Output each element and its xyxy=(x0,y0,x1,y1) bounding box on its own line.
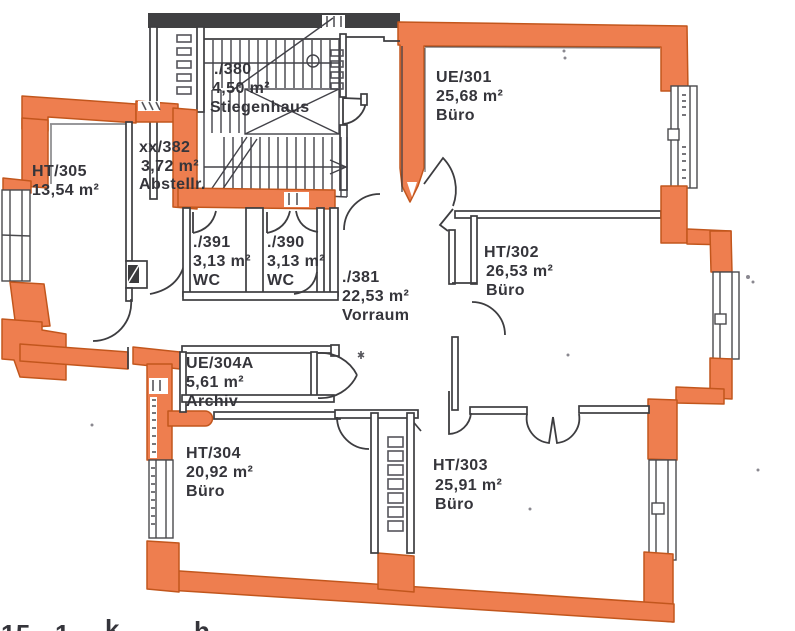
svg-text:5,61 m²: 5,61 m² xyxy=(186,374,244,391)
svg-text:HT/305: HT/305 xyxy=(32,163,87,180)
svg-text:3,13 m²: 3,13 m² xyxy=(267,253,325,270)
svg-text:HT/304: HT/304 xyxy=(186,445,241,462)
svg-text:./380: ./380 xyxy=(214,61,252,78)
svg-text:xx/382: xx/382 xyxy=(139,139,190,156)
svg-text:3,13 m²: 3,13 m² xyxy=(193,253,251,270)
svg-text:WC: WC xyxy=(267,272,295,289)
svg-text:1: 1 xyxy=(55,619,70,631)
svg-text:20,92 m²: 20,92 m² xyxy=(186,464,253,481)
svg-text:Vorraum: Vorraum xyxy=(342,307,409,324)
svg-text:Abstellr.: Abstellr. xyxy=(139,176,206,193)
svg-text:UE/301: UE/301 xyxy=(436,69,492,86)
svg-text:Büro: Büro xyxy=(186,483,225,500)
svg-text:HT/303: HT/303 xyxy=(433,457,488,474)
svg-text:Stiegenhaus: Stiegenhaus xyxy=(210,99,310,116)
svg-text:26,53 m²: 26,53 m² xyxy=(486,263,553,280)
svg-text:k: k xyxy=(105,614,120,631)
svg-text:HT/302: HT/302 xyxy=(484,244,539,261)
svg-text:Büro: Büro xyxy=(435,496,474,513)
svg-text:13,54 m²: 13,54 m² xyxy=(32,182,99,199)
svg-text:./381: ./381 xyxy=(342,269,380,286)
svg-text:4,50 m²: 4,50 m² xyxy=(212,80,270,97)
svg-text:Büro: Büro xyxy=(486,282,525,299)
svg-text:./391: ./391 xyxy=(193,234,231,251)
svg-text:WC: WC xyxy=(193,272,221,289)
svg-text:Büro: Büro xyxy=(436,107,475,124)
svg-text:Archiv: Archiv xyxy=(186,393,238,410)
svg-text:22,53 m²: 22,53 m² xyxy=(342,288,409,305)
svg-text:h: h xyxy=(194,616,210,631)
svg-text:UE/304A: UE/304A xyxy=(186,355,254,372)
svg-text:3,72 m²: 3,72 m² xyxy=(141,158,199,175)
svg-text:./390: ./390 xyxy=(267,234,305,251)
svg-text:25,91 m²: 25,91 m² xyxy=(435,477,502,494)
svg-text:15: 15 xyxy=(1,619,31,631)
svg-text:25,68 m²: 25,68 m² xyxy=(436,88,503,105)
